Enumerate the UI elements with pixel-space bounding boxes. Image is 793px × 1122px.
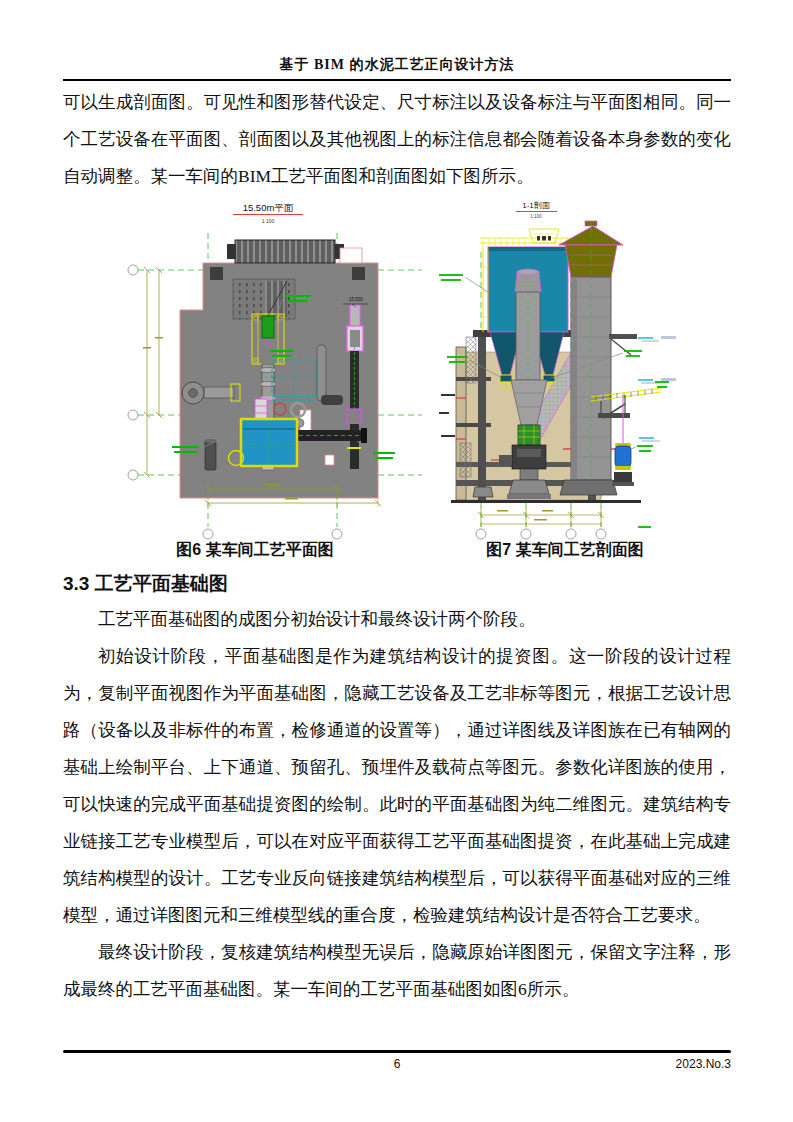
svg-text:15.50m平面: 15.50m平面 — [243, 202, 294, 213]
section-title-block: 1-1剖面 1:100 — [516, 201, 557, 219]
figure6-caption: 图6 某车间工艺平面图 — [110, 540, 400, 561]
figure-section-drawing: 1-1剖面 1:100 — [433, 197, 733, 542]
svg-text:1:100: 1:100 — [530, 214, 542, 219]
paper-page: 基于 BIM 的水泥工艺正向设计方法 可以生成剖面图。可见性和图形替代设定、尺寸… — [0, 0, 793, 1122]
plan-corner-block — [352, 267, 365, 280]
body-text-top: 可以生成剖面图。可见性和图形替代设定、尺寸标注以及设备标注与平面图相同。同一个工… — [63, 84, 731, 195]
plan-title-block: 15.50m平面 1:100 — [233, 202, 303, 224]
plan-stair-opening — [233, 279, 295, 319]
plan-dim-left — [143, 267, 163, 478]
plan-corner-block — [210, 267, 223, 280]
plan-grating-end — [227, 244, 236, 259]
footer-rule — [63, 1050, 731, 1053]
svg-text:1:100: 1:100 — [262, 218, 275, 224]
section-heading: 3.3 工艺平面基础图 — [63, 571, 228, 597]
header-rule — [63, 79, 731, 81]
paragraph: 工艺平面基础图的成图分初始设计和最终设计两个阶段。 — [63, 601, 731, 638]
body-text-main: 工艺平面基础图的成图分初始设计和最终设计两个阶段。 初始设计阶段，平面基础图是作… — [63, 601, 731, 1008]
paragraph: 可以生成剖面图。可见性和图形替代设定、尺寸标注以及设备标注与平面图相同。同一个工… — [63, 84, 731, 195]
svg-text:1-1剖面: 1-1剖面 — [522, 201, 551, 210]
section-dim-bottom — [478, 507, 604, 527]
issue-label: 2023.No.3 — [63, 1057, 731, 1071]
paragraph: 最终设计阶段，复核建筑结构模型无误后，隐藏原始详图图元，保留文字注释，形成最终的… — [63, 934, 731, 1008]
plan-grating — [235, 240, 335, 263]
figure-plan-drawing: 15.500 15.50m平面 1:100 — [125, 197, 425, 542]
section-blue-tank — [612, 395, 634, 486]
paragraph: 初始设计阶段，平面基础图是作为建筑结构设计的提资图。这一阶段的设计过程为，复制平… — [63, 638, 731, 934]
svg-text:15.500: 15.500 — [349, 297, 363, 302]
plan-dark-pipe — [297, 428, 367, 443]
section-grid-bubbles — [476, 529, 606, 539]
figure7-caption: 图7 某车间工艺剖面图 — [420, 540, 710, 561]
running-header: 基于 BIM 的水泥工艺正向设计方法 — [63, 56, 731, 74]
section-top-railing — [480, 229, 573, 247]
